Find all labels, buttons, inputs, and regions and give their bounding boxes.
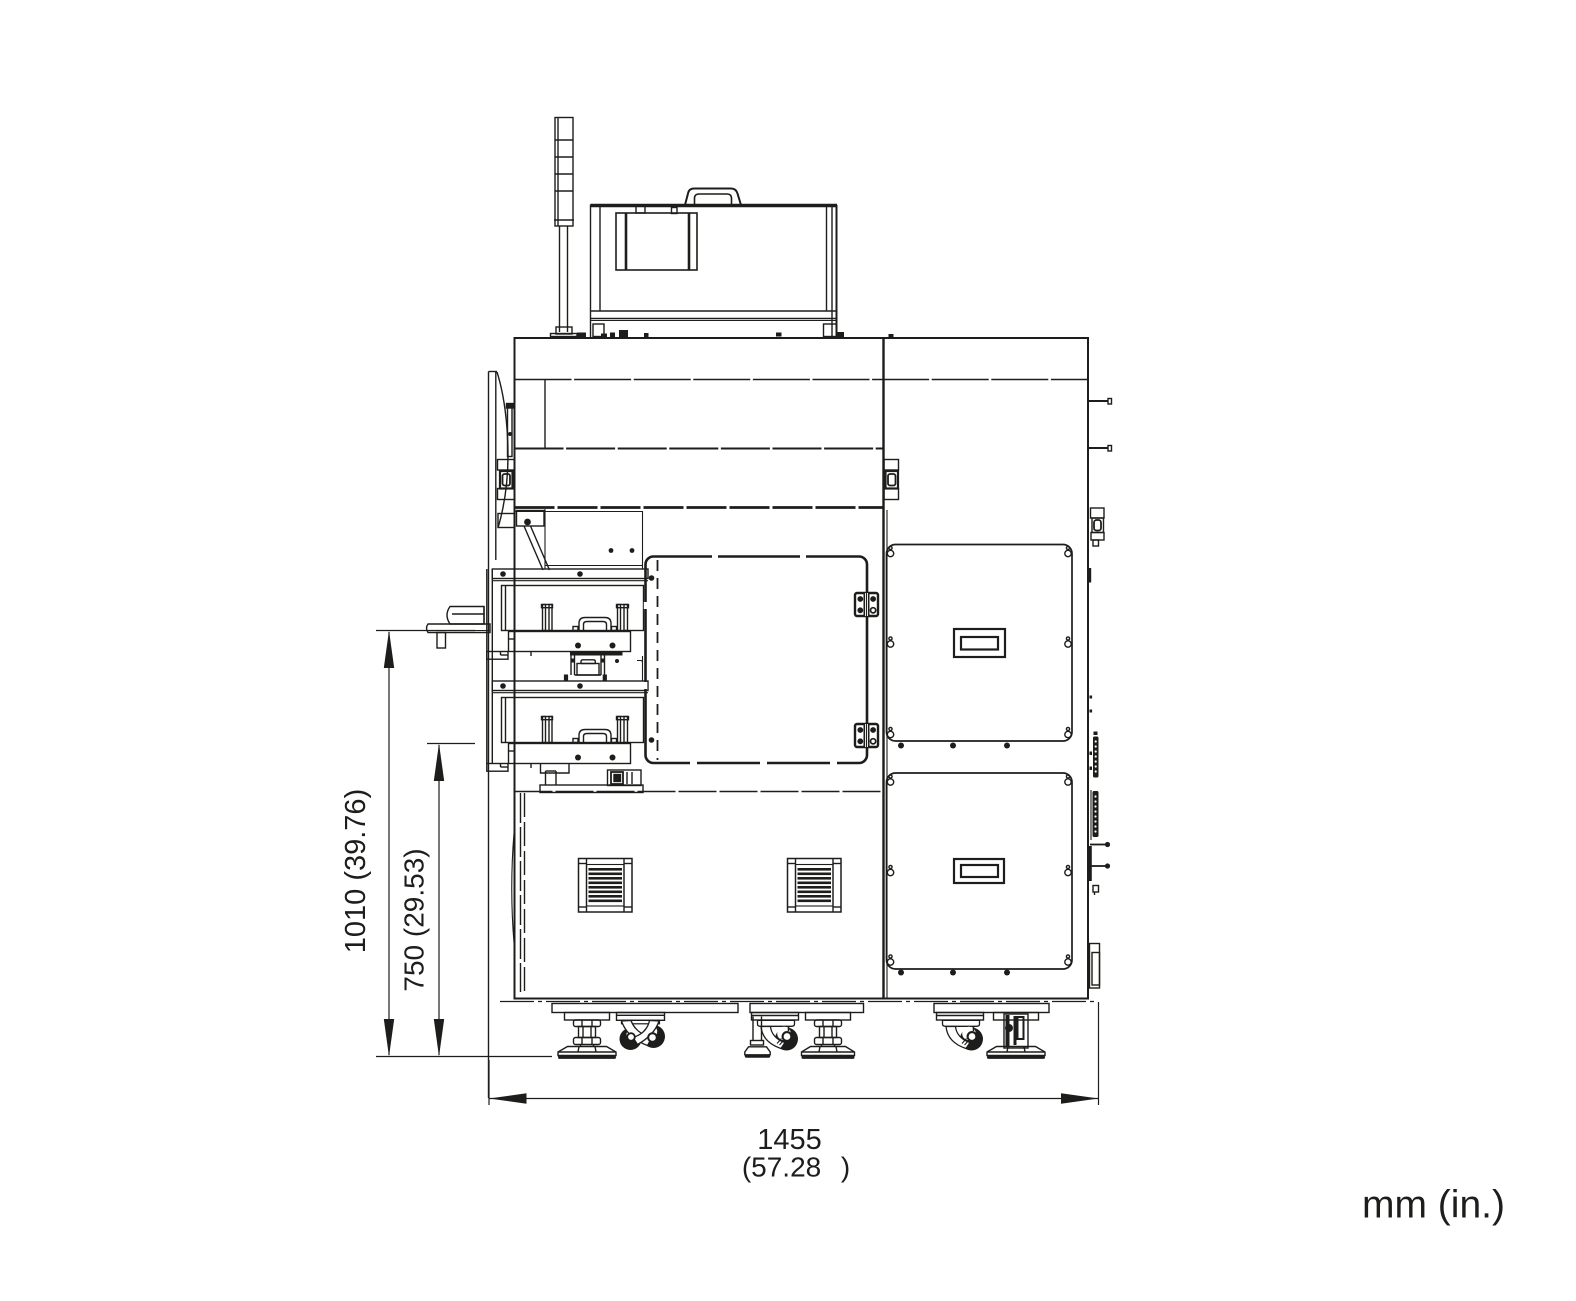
svg-text:1010 (39.76): 1010 (39.76) — [340, 789, 372, 953]
svg-text:(57.28 ): (57.28 ) — [742, 1152, 850, 1183]
svg-text:mm (in.): mm (in.) — [1362, 1184, 1505, 1227]
svg-text:750 (29.53): 750 (29.53) — [399, 848, 430, 991]
